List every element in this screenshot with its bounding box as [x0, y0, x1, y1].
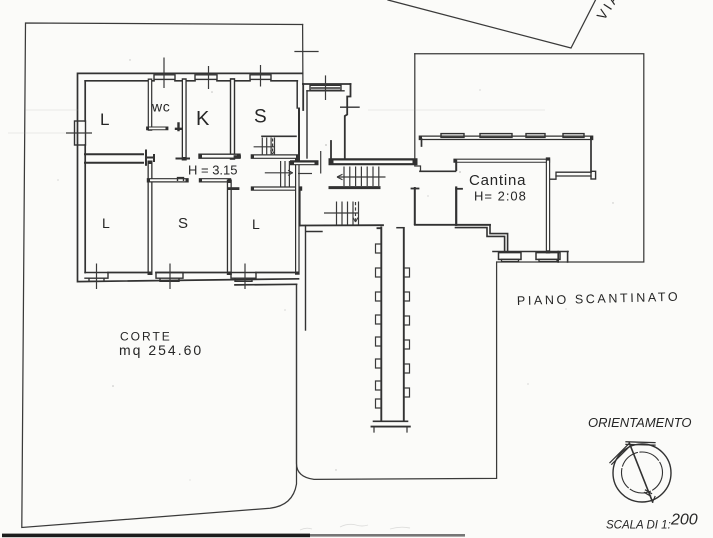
svg-text:L: L: [252, 216, 260, 232]
svg-text:ORIENTAMENTO: ORIENTAMENTO: [588, 415, 692, 430]
svg-text:SCALA DI 1:: SCALA DI 1:: [606, 520, 671, 532]
svg-text:wc: wc: [151, 99, 170, 115]
svg-text:L: L: [100, 110, 109, 129]
svg-text:200: 200: [670, 512, 698, 529]
svg-text:H= 2:08: H= 2:08: [474, 189, 527, 204]
svg-text:mq 254.60: mq 254.60: [119, 342, 203, 358]
svg-text:Cantina: Cantina: [469, 172, 526, 189]
svg-text:L: L: [102, 215, 110, 231]
svg-text:K: K: [196, 108, 210, 130]
svg-text:H = 3.15: H = 3.15: [188, 163, 238, 178]
svg-text:S: S: [178, 215, 188, 232]
svg-text:S: S: [254, 107, 267, 128]
